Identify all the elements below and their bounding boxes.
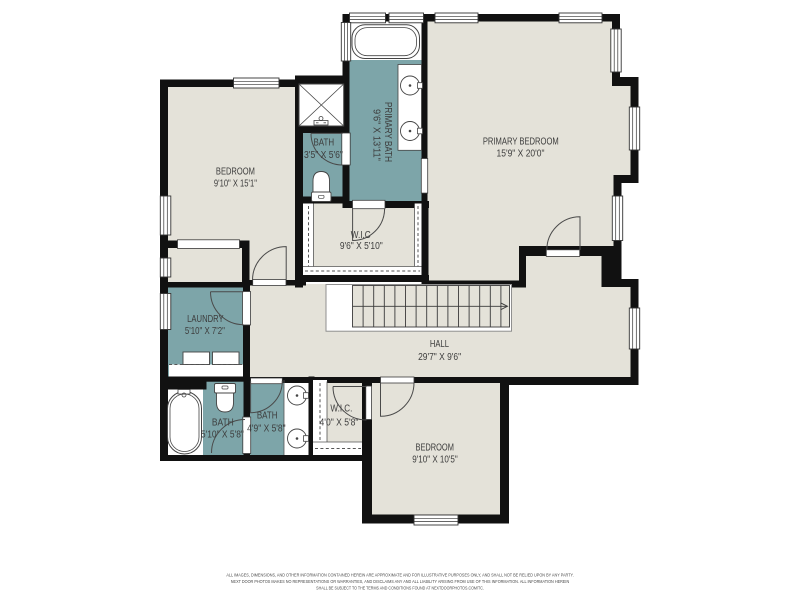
svg-text:BATH: BATH bbox=[313, 136, 334, 147]
svg-text:BEDROOM: BEDROOM bbox=[216, 165, 255, 176]
svg-text:BATH: BATH bbox=[257, 410, 278, 421]
svg-text:9'10" X 10'5": 9'10" X 10'5" bbox=[412, 454, 457, 465]
svg-text:BATH: BATH bbox=[212, 417, 234, 428]
svg-text:5'10" X 7'2": 5'10" X 7'2" bbox=[185, 325, 225, 336]
svg-text:3'5" X 5'6": 3'5" X 5'6" bbox=[304, 149, 343, 160]
svg-text:W.I.C: W.I.C bbox=[351, 229, 371, 240]
svg-text:BEDROOM: BEDROOM bbox=[415, 441, 453, 452]
svg-text:LAUNDRY: LAUNDRY bbox=[187, 313, 223, 324]
svg-text:9'6" X 5'10": 9'6" X 5'10" bbox=[340, 240, 383, 251]
svg-text:9'6" X 13'11": 9'6" X 13'11" bbox=[370, 109, 381, 161]
svg-text:ALL IMAGES, DIMENSIONS, AND OT: ALL IMAGES, DIMENSIONS, AND OTHER INFORM… bbox=[226, 572, 573, 577]
svg-text:29'7" X 9'6": 29'7" X 9'6" bbox=[418, 351, 461, 362]
svg-text:4'9" X 5'8": 4'9" X 5'8" bbox=[247, 423, 285, 434]
svg-text:W.I.C.: W.I.C. bbox=[330, 403, 352, 414]
svg-text:5'10" X 5'8": 5'10" X 5'8" bbox=[201, 429, 244, 440]
svg-text:PRIMARY BATH: PRIMARY BATH bbox=[383, 102, 394, 162]
svg-text:9'10" X 15'1": 9'10" X 15'1" bbox=[214, 178, 257, 189]
svg-text:NEXT DOOR PHOTOS MAKES NO REPR: NEXT DOOR PHOTOS MAKES NO REPRESENTATION… bbox=[231, 579, 569, 584]
svg-text:4'0" X 5'8": 4'0" X 5'8" bbox=[320, 417, 359, 428]
svg-text:HALL: HALL bbox=[430, 338, 449, 349]
svg-text:PRIMARY BEDROOM: PRIMARY BEDROOM bbox=[483, 135, 559, 146]
svg-text:15'9" X 20'0": 15'9" X 20'0" bbox=[497, 148, 545, 159]
svg-text:SHALL BE SUBJECT TO THE TERMS: SHALL BE SUBJECT TO THE TERMS AND CONDIT… bbox=[316, 585, 484, 590]
